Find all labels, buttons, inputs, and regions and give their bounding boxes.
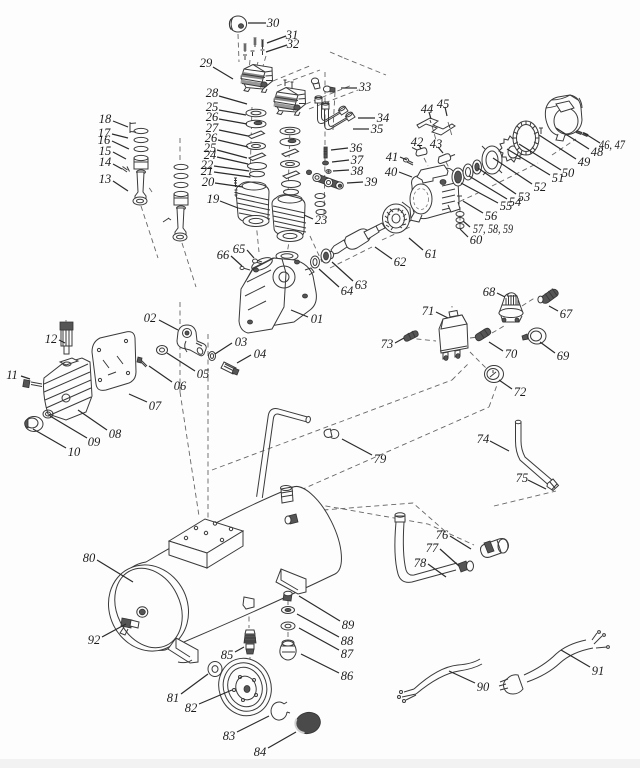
svg-text:61: 61 bbox=[425, 247, 438, 261]
svg-text:86: 86 bbox=[341, 669, 354, 683]
svg-text:85: 85 bbox=[221, 648, 234, 662]
svg-text:03: 03 bbox=[235, 335, 248, 349]
svg-text:87: 87 bbox=[341, 647, 354, 661]
svg-text:38: 38 bbox=[350, 164, 364, 178]
svg-text:35: 35 bbox=[370, 122, 384, 136]
svg-text:05: 05 bbox=[197, 367, 210, 381]
svg-text:17: 17 bbox=[98, 126, 111, 140]
svg-text:69: 69 bbox=[557, 349, 570, 363]
svg-text:79: 79 bbox=[374, 452, 387, 466]
svg-text:68: 68 bbox=[483, 285, 496, 299]
svg-text:20: 20 bbox=[202, 175, 215, 189]
svg-text:29: 29 bbox=[200, 56, 213, 70]
svg-text:01: 01 bbox=[311, 312, 324, 326]
svg-text:78: 78 bbox=[414, 556, 427, 570]
svg-text:91: 91 bbox=[592, 664, 605, 678]
svg-text:75: 75 bbox=[516, 471, 529, 485]
svg-text:66: 66 bbox=[217, 248, 230, 262]
svg-text:43: 43 bbox=[430, 137, 443, 151]
svg-text:50: 50 bbox=[562, 166, 575, 180]
svg-text:90: 90 bbox=[477, 680, 490, 694]
svg-text:02: 02 bbox=[144, 311, 157, 325]
svg-text:81: 81 bbox=[167, 691, 180, 705]
svg-text:39: 39 bbox=[364, 175, 378, 189]
svg-text:74: 74 bbox=[477, 432, 490, 446]
svg-text:10: 10 bbox=[68, 445, 81, 459]
svg-text:11: 11 bbox=[6, 368, 18, 382]
svg-text:13: 13 bbox=[99, 172, 112, 186]
svg-text:12: 12 bbox=[45, 332, 58, 346]
svg-text:44: 44 bbox=[421, 102, 434, 116]
svg-text:88: 88 bbox=[341, 634, 354, 648]
svg-text:71: 71 bbox=[422, 304, 435, 318]
svg-text:83: 83 bbox=[223, 729, 236, 743]
svg-text:19: 19 bbox=[207, 192, 220, 206]
svg-text:32: 32 bbox=[286, 37, 300, 51]
svg-text:04: 04 bbox=[254, 347, 267, 361]
svg-text:33: 33 bbox=[358, 80, 372, 94]
svg-text:70: 70 bbox=[505, 347, 518, 361]
svg-text:64: 64 bbox=[341, 284, 354, 298]
svg-text:41: 41 bbox=[386, 150, 399, 164]
svg-text:65: 65 bbox=[233, 242, 246, 256]
svg-text:42: 42 bbox=[411, 135, 424, 149]
svg-text:73: 73 bbox=[381, 337, 394, 351]
svg-text:76: 76 bbox=[436, 528, 449, 542]
svg-text:23: 23 bbox=[315, 213, 328, 227]
svg-text:92: 92 bbox=[88, 633, 101, 647]
svg-text:72: 72 bbox=[514, 385, 527, 399]
svg-text:06: 06 bbox=[174, 379, 187, 393]
svg-text:56: 56 bbox=[485, 209, 498, 223]
svg-text:62: 62 bbox=[394, 255, 407, 269]
svg-text:82: 82 bbox=[185, 701, 198, 715]
svg-text:48: 48 bbox=[591, 145, 604, 159]
svg-text:89: 89 bbox=[342, 618, 355, 632]
svg-text:84: 84 bbox=[254, 745, 267, 759]
svg-text:52: 52 bbox=[534, 180, 547, 194]
svg-text:28: 28 bbox=[206, 86, 219, 100]
svg-text:18: 18 bbox=[99, 112, 112, 126]
svg-text:55: 55 bbox=[500, 199, 513, 213]
svg-text:67: 67 bbox=[560, 307, 573, 321]
svg-text:08: 08 bbox=[109, 427, 122, 441]
svg-text:77: 77 bbox=[426, 541, 439, 555]
svg-text:80: 80 bbox=[83, 551, 96, 565]
svg-text:40: 40 bbox=[385, 165, 398, 179]
svg-text:45: 45 bbox=[437, 97, 450, 111]
svg-text:60: 60 bbox=[470, 233, 483, 247]
svg-text:63: 63 bbox=[355, 278, 368, 292]
svg-text:07: 07 bbox=[149, 399, 162, 413]
svg-text:09: 09 bbox=[88, 435, 101, 449]
svg-text:30: 30 bbox=[266, 16, 280, 30]
svg-text:49: 49 bbox=[578, 155, 591, 169]
